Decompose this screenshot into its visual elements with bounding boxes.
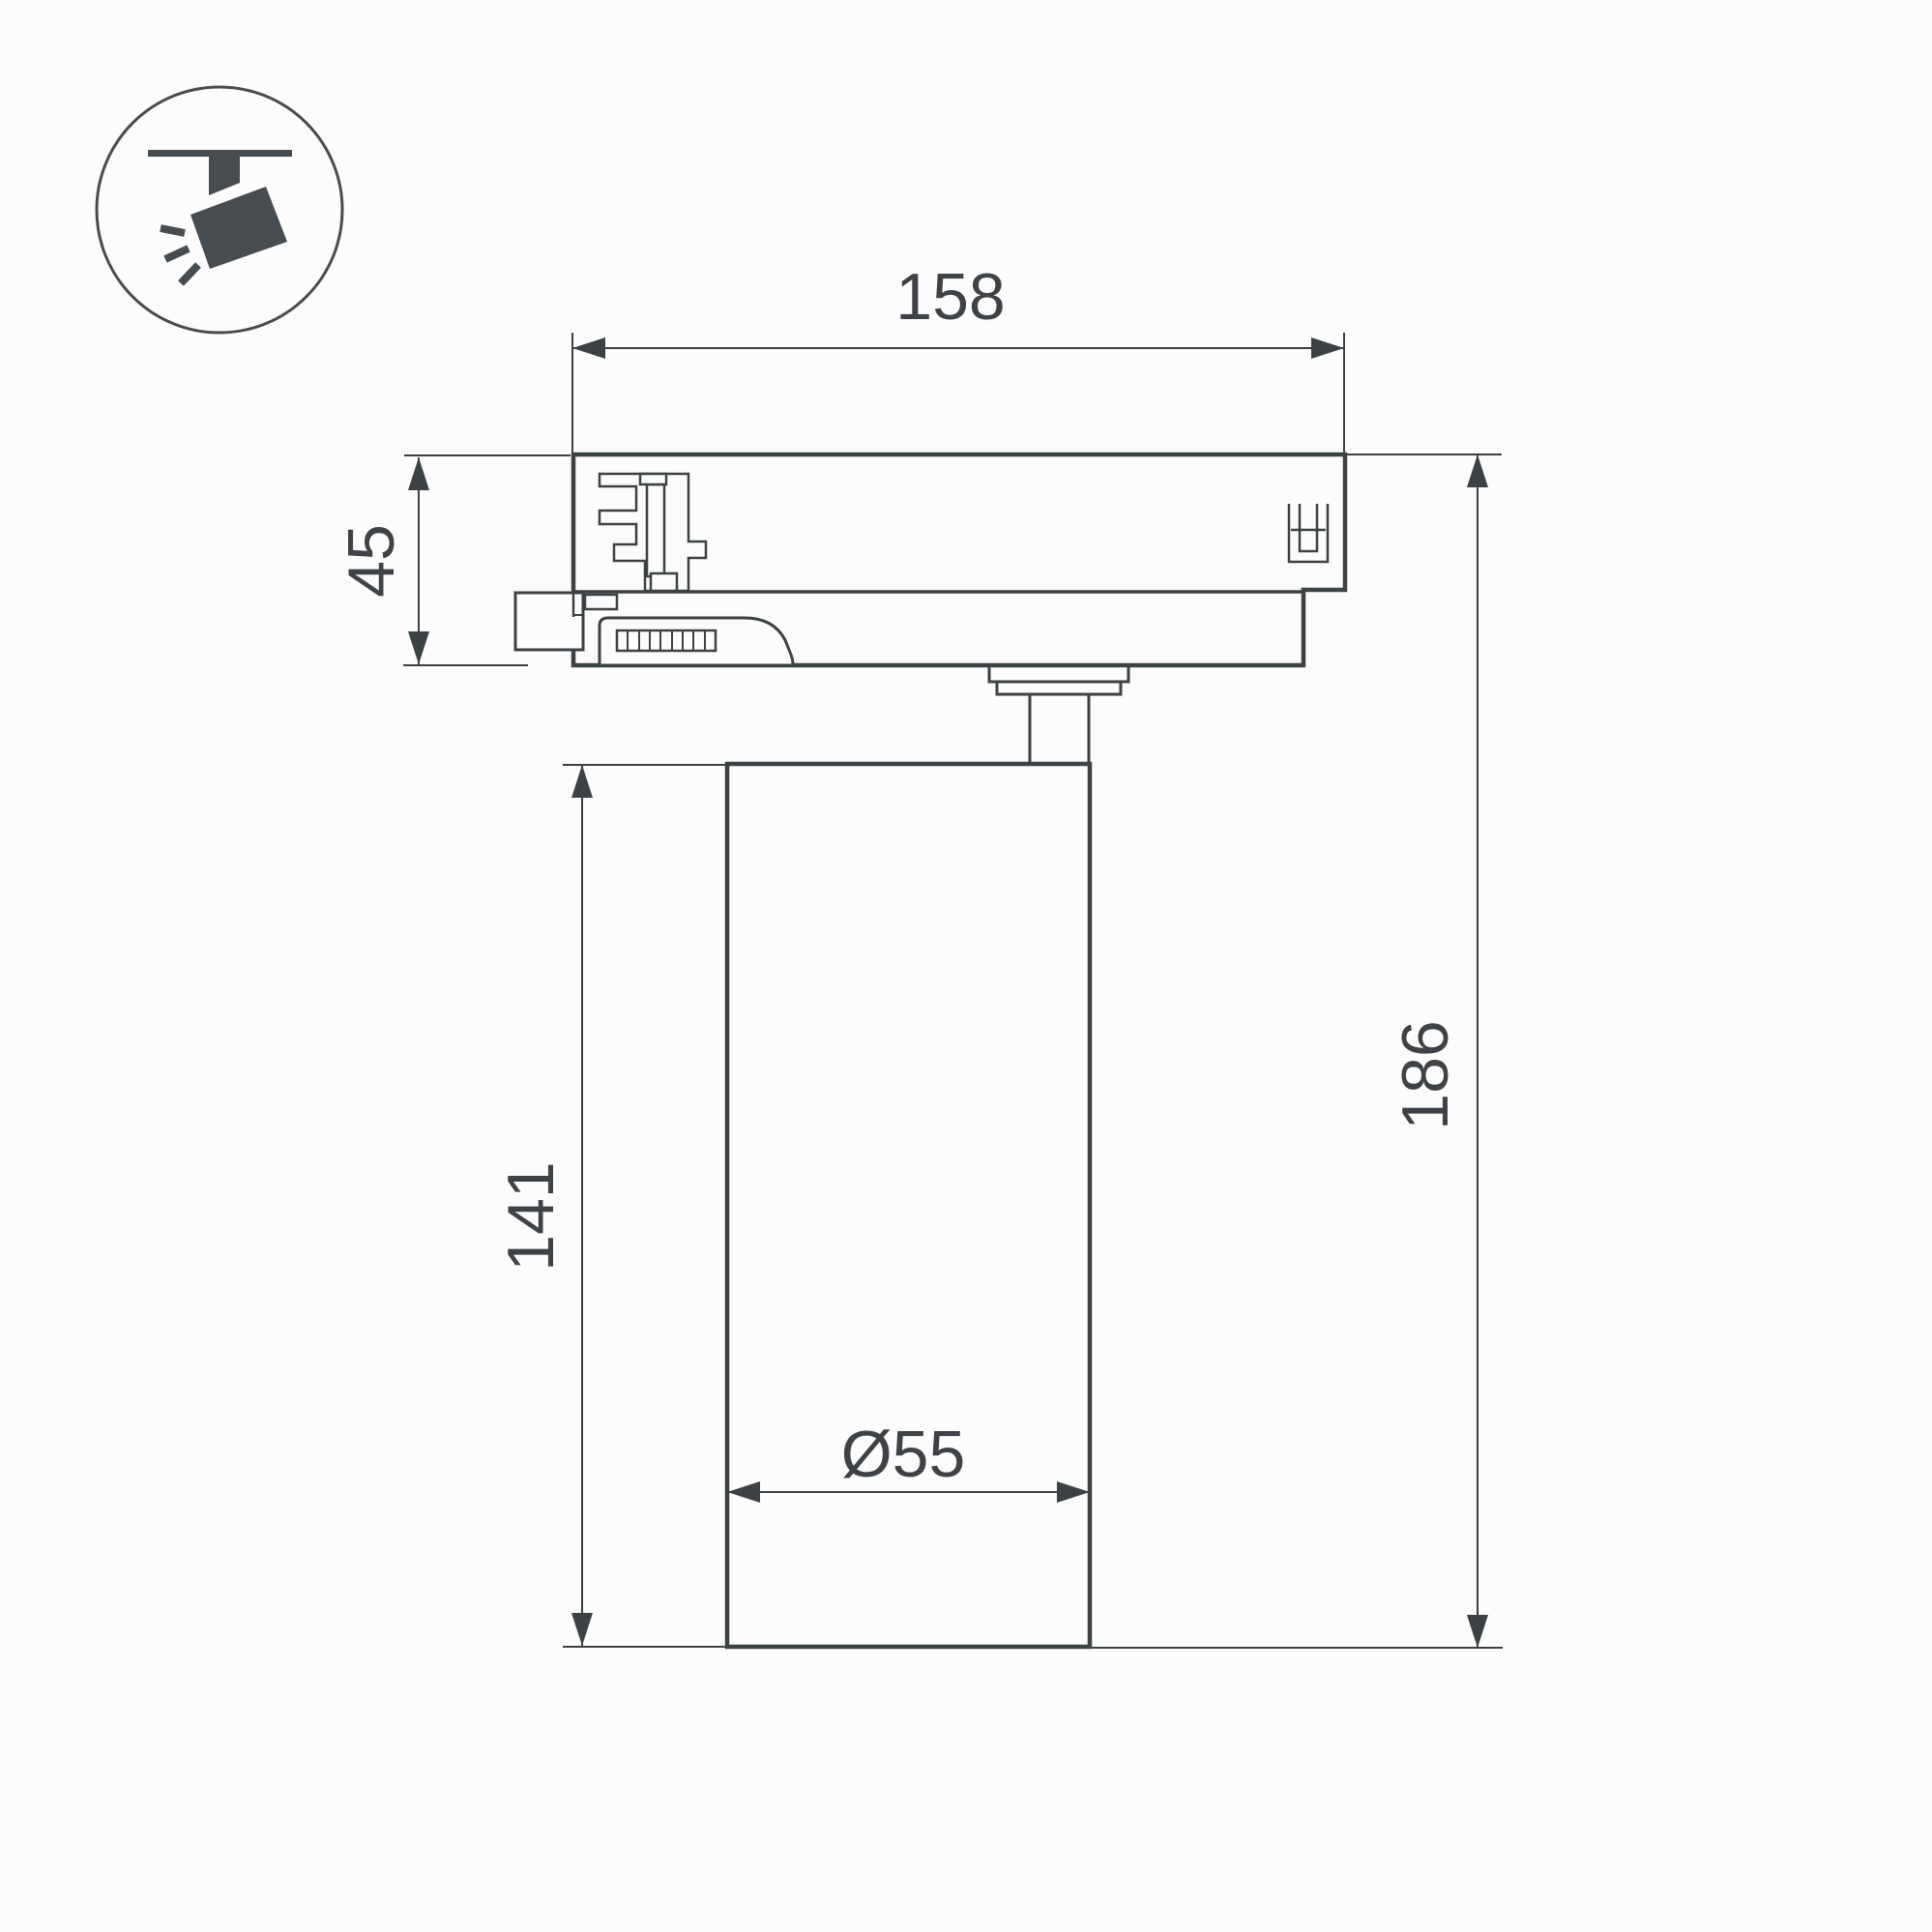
contact-pin-cap [640,474,666,484]
dimension-label-overall-height: 186 [1389,1020,1462,1129]
dimension-label-body-height: 141 [494,1161,568,1271]
dimension-label-body-diameter: Ø55 [841,1418,966,1491]
contact-pin [647,484,664,576]
technical-drawing-page: 158 45 141 186 Ø55 [0,0,1932,1932]
contact-pin-foot [651,573,677,591]
icon-ceiling-track [148,150,292,157]
dimension-drawing-canvas: 158 45 141 186 Ø55 [0,0,1932,1932]
track-adapter [515,454,1345,665]
lamp-body-cylinder [727,764,1090,1647]
dimension-label-adapter-height: 45 [335,524,408,598]
light-ray-icon [161,228,185,233]
dimension-label-width-top: 158 [895,260,1005,334]
